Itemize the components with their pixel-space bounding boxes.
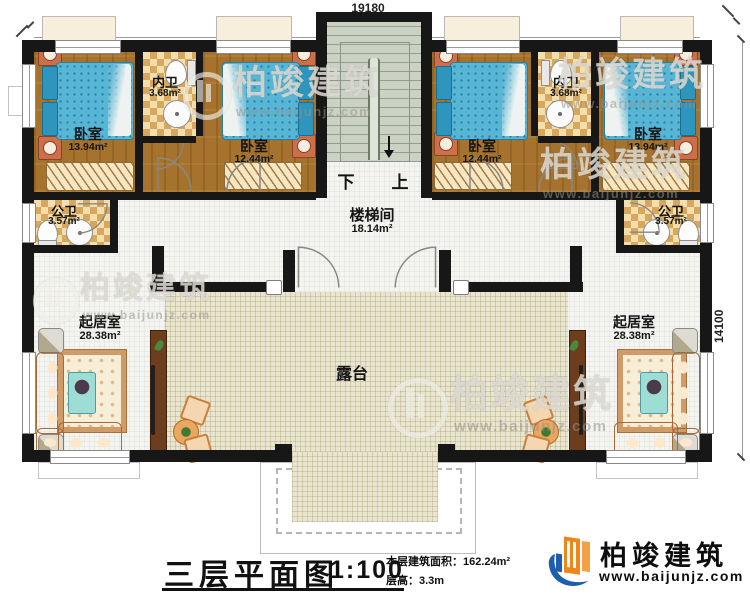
coffee-table [68,372,96,414]
dimension-tick [722,5,735,18]
coffee-table [640,372,668,414]
toilet-tank [541,60,550,86]
stair-down-label: 下 [338,168,355,193]
wall-stair-left [316,12,327,198]
bed-pillow [298,102,314,136]
bed-pillow [42,66,58,100]
terrace-column-right [438,444,455,462]
bed-blanket [108,64,131,136]
tv-icon [151,365,155,435]
toilet-tank [187,60,196,86]
stair-hall-label: 楼梯间 [349,204,394,225]
window-sill [38,462,140,479]
dimension-tick [737,35,745,43]
wall-terrace-stub-right [439,250,451,292]
bedroom-tr-area: 13.94m² [628,141,667,153]
public-bath-l-area: 3.57m² [48,216,80,227]
window [606,450,686,464]
wall-bedrooms-bottom-right [432,192,712,200]
terrace-knob-right [453,280,469,295]
floor-plan-sheet: 卧室 13.94m² 内卫 3.68m² 卧室 12.44m² 卧室 12.44… [0,0,750,598]
bed-pillow [680,66,696,100]
sofa [36,352,64,434]
door-arc [296,246,340,290]
wall-bath-br4 [591,52,599,192]
window [700,203,714,243]
bedroom-tl-area: 13.94m² [68,141,107,153]
window [617,40,683,54]
window [22,352,36,434]
living-l-label: 起居室 [79,312,121,332]
living-l-area: 28.38m² [80,330,121,342]
bed-pillow [298,66,314,100]
living-r-label: 起居室 [613,312,655,332]
company-logo-icon [546,528,596,592]
wall-bath-r-bottom [538,136,591,143]
window-sill [596,462,698,479]
company-website: www.baijunjz.com [599,568,744,584]
bed-blanket [502,64,525,136]
tv-icon [579,365,583,435]
door-arc [76,202,108,234]
dimension-top-value: 19180 [351,1,384,15]
dimension-right-value: 14100 [712,310,726,343]
floor-area-label: 本层建筑面积：162.24m² [386,553,510,569]
window [216,40,291,54]
bed-blanket [223,64,246,136]
wall-terrace-top-left [150,282,266,292]
window [22,203,36,243]
wall-bedrooms-bottom-left [34,192,316,200]
bedroom-ml-area: 12.44m² [234,153,273,165]
terrace-extension-floor [292,452,438,522]
window [55,40,121,54]
lamp-table [38,328,64,354]
window [22,64,36,128]
wardrobe [602,162,690,191]
sink-icon [546,100,574,128]
lamp-table [672,328,698,354]
bed-blanket [605,64,628,136]
wall-bath-l-bottom [143,136,196,143]
bed-pillow [42,102,58,136]
bedroom-mr-area: 12.44m² [462,153,501,165]
bed-pillow [436,66,452,100]
public-bath-r-area: 3.57m² [655,216,687,227]
door-arc [394,246,438,290]
bed-pillow [436,102,452,136]
dimension-line-right [742,42,743,460]
wardrobe [46,162,134,191]
terrace-label: 露台 [336,360,368,384]
wall-bath-br2 [196,52,203,136]
door-arc [154,140,184,170]
sofa [672,352,700,434]
title-underline [162,588,404,591]
stair-rail [368,58,380,160]
wall-br1-bath [135,52,143,192]
window [700,352,714,434]
stair-arrow-head [384,150,394,158]
door-arc [548,140,578,170]
stair-up-label: 上 [392,168,409,193]
inner-bath-l-area: 3.68m² [149,88,181,99]
window [50,450,130,464]
wall-pbath-l-bottom [22,245,118,253]
bed-pillow [680,102,696,136]
floor-height-label: 层高：3.3m [386,572,444,588]
dimension-tick [733,17,741,25]
dimension-tick [27,21,35,29]
window [700,64,714,128]
terrace-column-left [275,444,292,462]
wall-terrace-stub-left [283,250,295,292]
wall-terrace-top-right [468,282,583,292]
wall-pbath-r-bottom [616,245,712,253]
terrace-knob-left [266,280,282,295]
wall-stair-right [421,12,432,198]
wall-br3-bath [531,52,538,136]
window [446,40,520,54]
stair-hall-area: 18.14m² [352,223,393,235]
living-r-area: 28.38m² [614,330,655,342]
sink-icon [163,100,191,128]
dimension-tick [737,453,745,461]
inner-bath-r-area: 3.68m² [550,88,582,99]
